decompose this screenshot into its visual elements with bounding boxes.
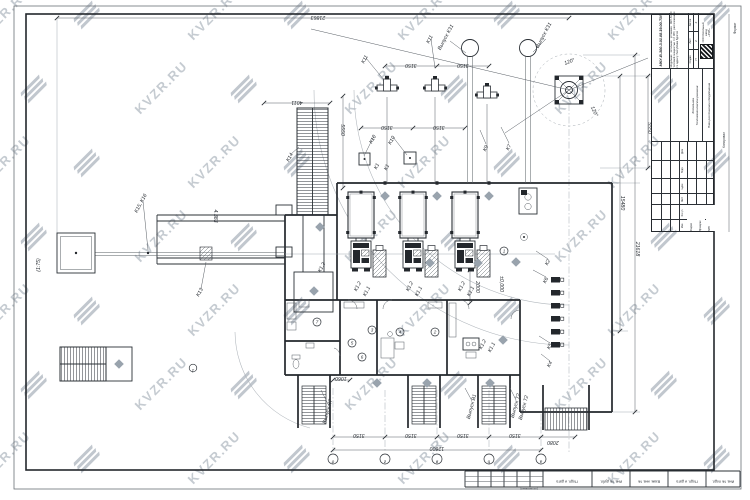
dimension-text: 3150 [457,432,469,438]
pipe-label: 120° [564,57,576,66]
pipe-label: К1.2 [405,280,415,292]
pipe-label: К1.2 [457,280,467,292]
dimension-text: (1:75) [36,258,42,272]
pipe-label: К15, К16 [134,193,149,214]
dimension-text: 1060 [335,375,347,381]
room-number: 1 [503,249,506,254]
dimension-text: 2000 [474,280,480,293]
pipe-label: 120° [589,105,599,117]
object-name: Котельная. Тепломеханические решения [688,69,702,142]
room-number: 7 [316,320,319,325]
sig-gip: ГИП [706,205,715,231]
drawing-sheet: KVZR.RUKVZR.RUKVZR.RUKVZR.RUKVZR.RUKVZR.… [0,0,750,500]
pipe-label: К1.1 [487,341,497,353]
frame-bottom-cell-label: Подп. и дата [676,480,697,484]
dimension-text: 15480 [619,196,625,211]
sig-proveril: Проверил [696,205,705,231]
col-podp: Подп. [679,161,687,179]
kopiroval-label: Копировал [722,132,726,148]
dimension-text: 4.383 [212,210,218,223]
dimension-text: 21863 [311,14,327,20]
pipe-label: К14 [285,152,294,163]
dimension-text: 3150 [405,62,417,68]
title-block: Изм. Кол.уч. Лист №док. Подп. Дата Разра… [651,14,714,232]
louver-grille [543,385,589,430]
title-block-table: Изм. Кол.уч. Лист №док. Подп. Дата Разра… [651,14,714,232]
room-number: 3 [371,328,374,333]
building-walls [285,181,612,412]
frame-bottom-cell-label: Инв. № дубл. [600,480,622,484]
stack-risers [387,97,487,183]
frame-bottom-cell-label: Взам. инв. № [638,480,660,484]
company-cell: ООО Котельный завод «РЭП» [698,13,715,69]
pipe-label: Выпуск В1 [466,394,478,420]
dimension-text: 3150 [381,124,393,130]
pipe-label: К1 [383,163,391,171]
vent-outlets [462,40,537,184]
dimension-text: 3150 [433,124,445,130]
dimension-text: 4011 [291,99,302,105]
roof-fitting-3 [475,83,499,98]
pipe-label: К11 [360,54,369,64]
pipe-label: Выпуск К31 [437,24,456,52]
soglasovano-label: (согласовано) [512,487,546,490]
northwest-stair [294,108,333,312]
room-number: 2 [433,330,437,335]
room-number: 5 [351,341,354,346]
company-line3: «РЭП» [708,23,711,43]
dimension-text: 21618 [634,241,640,257]
pipe-label: Выпуск К31 [535,22,554,50]
pipe-label: К1 [373,162,381,170]
company-logo-icon [700,44,713,59]
pipe-label: К1.2 [353,280,363,292]
dimension-text: 3150 [405,432,417,438]
dimension-text: 5550 [339,124,345,136]
col-list: Лист [679,194,687,205]
pipe-label: К2 [544,258,552,266]
col-izm: Изм. [679,220,687,231]
col-koluch: Кол.уч. [679,205,687,220]
pipe-label: К10 [387,135,396,146]
doc-number: МКУ-В-300-3.01.08.19.00-ТМ [652,13,669,69]
sig-razrab: Разраб. [687,205,696,231]
pipe-label: К4 [546,360,554,368]
format-label: Формат [733,23,737,34]
plan-drawing: 2186340113150315031503150555055501548021… [0,0,750,500]
pipe-label: К10 [368,134,377,145]
pipe-label: К13 [195,287,204,298]
pipe-label: К7 [505,143,514,152]
room-number: 4 [399,330,402,335]
object-name-line2: Тепломеханические решения [695,86,699,126]
roof-fitting-2 [423,76,447,91]
pipe-label: К11 [425,34,434,44]
pipe-label: ±0,000 [498,276,504,292]
pipe-label: К1.1 [414,285,424,297]
pipe-label: К1.1 [362,285,372,297]
sheet-title: План расстановки оборудования [702,69,715,142]
doc-description: Модульная котельная установка МКУ-В-300 … [669,10,690,69]
frame-bottom-cell-label: Инв. № подл. [712,480,734,484]
frame-bottom-cell-label: Подп. и дата [556,480,577,484]
boiler-unit-1 [346,191,386,277]
chimney [311,29,648,133]
roof-fitting-1 [375,76,399,91]
col-dok: №док. [679,179,687,194]
axis-letter: б [487,460,490,465]
dimension-text: 3150 [353,432,365,438]
dimension-text: 3150 [509,432,521,438]
axis-letter: 1 [191,368,194,373]
boiler-unit-3 [450,191,490,277]
pipe-label: К9 [482,144,490,152]
dimension-text: 12600 [430,445,445,451]
pipe-label: К6 [542,276,550,284]
axis-letter: д [331,460,334,465]
axis-letter: а [539,460,542,465]
col-data: Дата [679,142,687,161]
pipe-label: К1.2 [478,338,488,350]
dimension-text: 3150 [457,62,469,68]
dimension-text: 2080 [547,439,560,445]
room-number: 6 [361,355,364,360]
